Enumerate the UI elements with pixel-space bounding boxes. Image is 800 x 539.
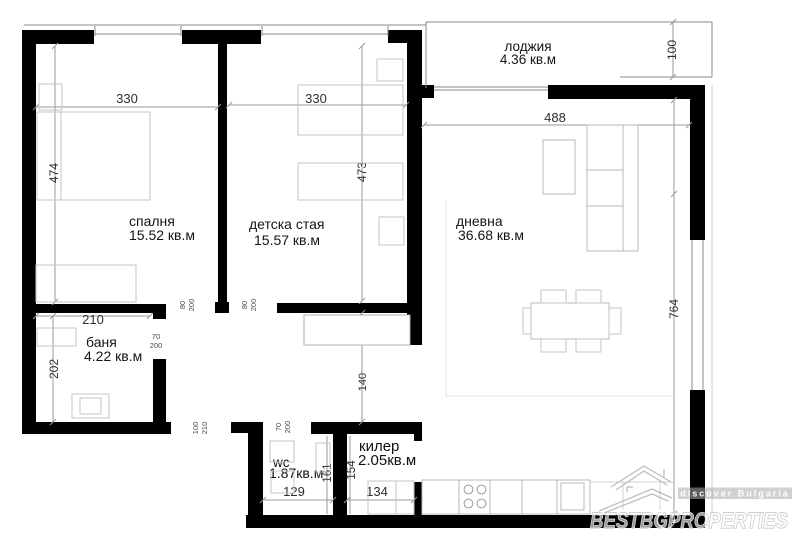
- svg-text:36.68 кв.м: 36.68 кв.м: [458, 227, 524, 243]
- svg-text:15.57 кв.м: 15.57 кв.м: [254, 232, 320, 248]
- svg-text:202: 202: [47, 359, 61, 379]
- svg-text:100: 100: [665, 40, 679, 60]
- svg-text:330: 330: [305, 91, 327, 106]
- svg-text:210: 210: [82, 312, 104, 327]
- svg-text:4.22 кв.м: 4.22 кв.м: [84, 348, 142, 364]
- svg-text:15.52 кв.м: 15.52 кв.м: [129, 227, 195, 243]
- svg-text:330: 330: [116, 91, 138, 106]
- svg-text:BESTBGPROPERTIES: BESTBGPROPERTIES: [590, 508, 788, 533]
- svg-text:140: 140: [357, 373, 369, 391]
- svg-text:2.05кв.м: 2.05кв.м: [358, 452, 416, 469]
- svg-text:discover Bulgaria: discover Bulgaria: [680, 489, 790, 499]
- svg-text:100210: 100210: [191, 422, 209, 435]
- svg-text:детска стая: детска стая: [249, 216, 324, 232]
- svg-text:154: 154: [346, 460, 358, 480]
- svg-text:474: 474: [47, 163, 61, 183]
- svg-text:473: 473: [355, 162, 369, 182]
- svg-text:488: 488: [544, 110, 566, 125]
- svg-text:1.87кв.м: 1.87кв.м: [269, 465, 323, 481]
- svg-text:134: 134: [366, 484, 388, 499]
- svg-text:764: 764: [667, 299, 681, 319]
- svg-text:161: 161: [322, 463, 334, 482]
- svg-text:4.36 кв.м: 4.36 кв.м: [500, 52, 556, 67]
